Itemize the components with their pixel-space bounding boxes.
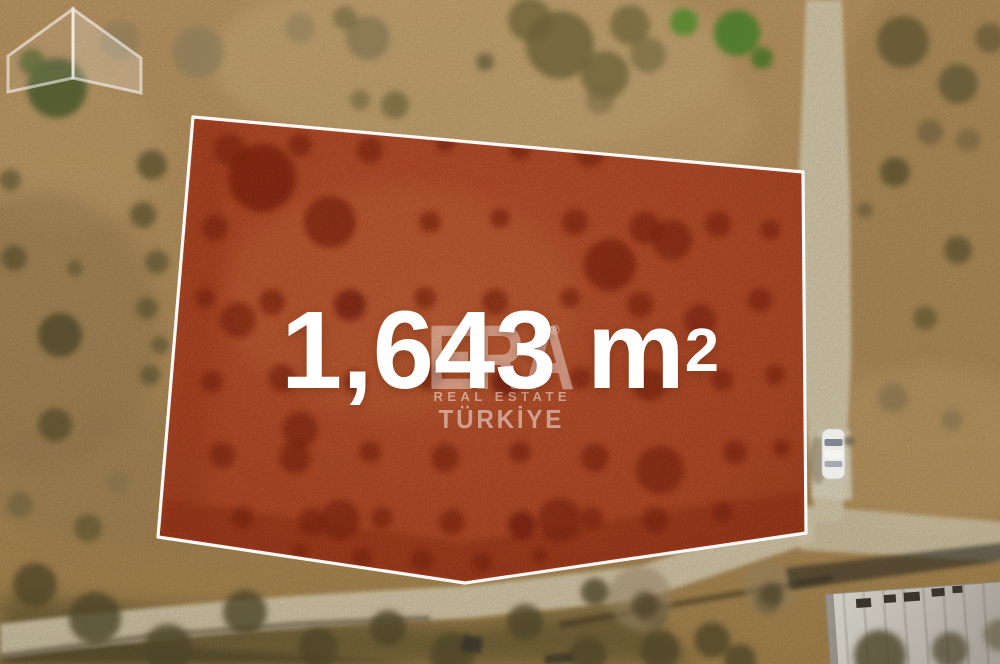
area-value: 1,643 m xyxy=(281,289,685,412)
area-label: 1,643 m2 xyxy=(0,296,1000,406)
building-roof xyxy=(825,581,1000,664)
area-superscript: 2 xyxy=(685,316,719,385)
aerial-photo: ERA ® REAL ESTATE TÜRKİYE 1,643 m2 xyxy=(0,0,1000,664)
